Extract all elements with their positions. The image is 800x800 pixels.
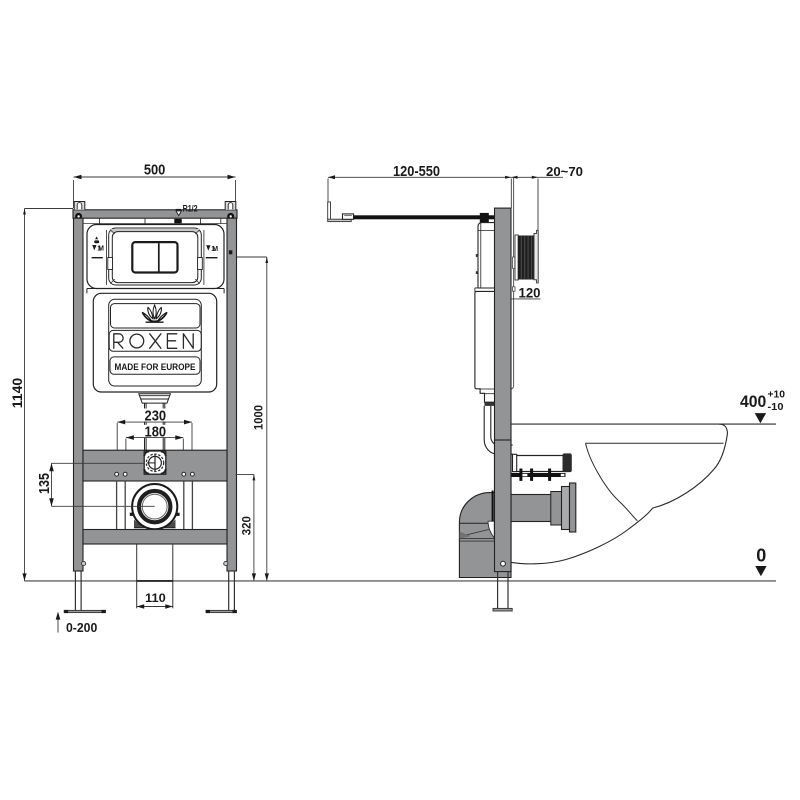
- svg-text:1000: 1000: [254, 405, 266, 430]
- svg-text:120-550: 120-550: [393, 164, 440, 180]
- svg-text:110: 110: [145, 591, 166, 605]
- svg-text:1140: 1140: [9, 378, 25, 409]
- svg-text:-10: -10: [768, 402, 784, 413]
- svg-text:320: 320: [241, 516, 253, 535]
- svg-text:500: 500: [144, 161, 166, 178]
- svg-text:20~70: 20~70: [546, 164, 583, 179]
- svg-text:135: 135: [36, 473, 53, 494]
- svg-text:1M: 1M: [97, 246, 104, 253]
- svg-text:1M: 1M: [211, 246, 218, 253]
- svg-text:R1/2: R1/2: [183, 203, 198, 214]
- svg-text:120: 120: [519, 284, 541, 300]
- svg-text:400: 400: [740, 392, 766, 411]
- svg-text:0: 0: [756, 545, 766, 565]
- svg-text:0-200: 0-200: [66, 620, 97, 635]
- svg-text:MADE FOR EUROPE: MADE FOR EUROPE: [115, 362, 196, 373]
- svg-text:+10: +10: [768, 390, 786, 401]
